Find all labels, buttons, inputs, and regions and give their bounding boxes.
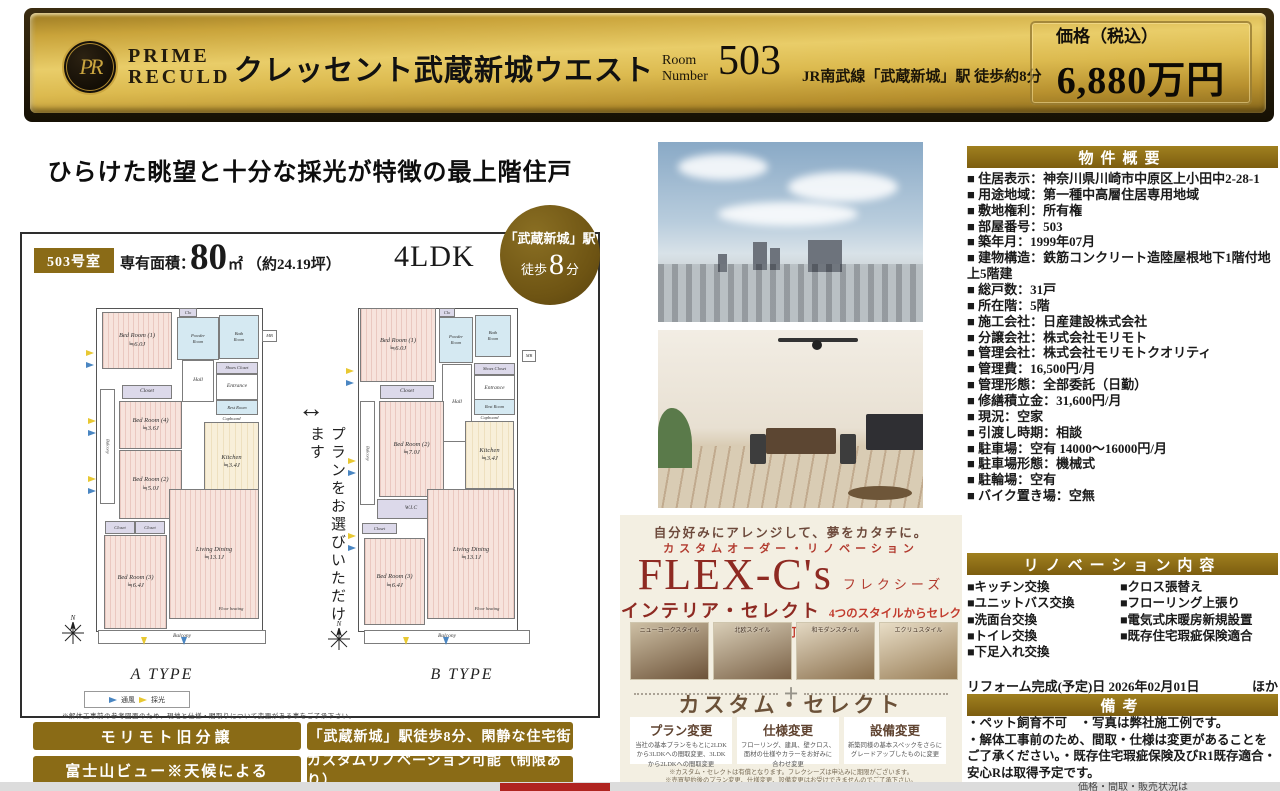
custom-select-title: カスタム・セレクト [620,689,962,719]
feature-badge-renovation: カスタムリノベーション可能（制限あり） [307,756,573,784]
compass-icon: N [328,620,350,650]
room-closet: Closet [122,385,172,399]
catch-headline: ひらけた眺望と十分な採光が特徴の最上階住戸 [36,152,584,187]
flexcs-panel: 自分好みにアレンジして、夢をカタチに。 カスタムオーダー・リノベーション FLE… [620,515,962,782]
room-entrance: Entrance [216,374,258,400]
interior-select-title: インテリア・セレクト [621,601,821,621]
overview-item: ■ 管理形態：全部委託（日勤） [967,377,1279,393]
room-number: 503 [718,37,781,85]
flex-brand-row: FLEX-C's フレクシーズ [620,549,962,600]
room-living-dining: Living Dining ≒13.1J [427,489,515,619]
room-restroom: Rest Room [216,400,258,415]
room-cupboard: Cupboard [465,414,514,421]
renovation-item: ■トイレ交換 [967,628,1075,644]
remarks-line: ・解体工事前のため、間取・仕様は変更があることをご了承ください。・既存住宅瑕疵保… [967,732,1279,782]
light-arrow-icon [139,697,147,703]
plan-select-text: プランをお選びいただけます [306,426,348,626]
wind-arrow-icon [348,470,356,476]
feature-badge-fujiview: 富士山ビュー※天候による [33,756,301,784]
legend-wind: 通風 [121,695,135,705]
overview-list: ■ 住居表示：神奈川県川崎市中原区上小田中2-28-1 ■ 用途地域：第一種中高… [967,171,1279,504]
renovation-item: ■既存住宅瑕疵保険適合 [1120,628,1253,644]
renovation-list-left: ■キッチン交換 ■ユニットバス交換 ■洗面台交換 ■トイレ交換 ■下足入れ交換 [967,579,1075,660]
wind-arrow-icon [181,637,187,645]
feature-badge-morimoto: モリモト旧分譲 [33,722,301,750]
overview-item: ■ 所在階：5階 [967,298,1279,314]
floorplan-a: Bed Room (1) ≒6.0J Clo Powder Room Bath … [48,308,280,650]
ceiling-light-shape [812,340,822,350]
flex-brand-logo: FLEX-C's [638,550,833,599]
style-label: ニューヨークスタイル [631,625,708,634]
overview-item: ■ バイク置き場：空無 [967,488,1279,504]
footer-text-fragment: 価格・間取・販売状況は [1078,782,1188,791]
room-closet: Closet [135,521,165,534]
room-bedroom3: Bed Room (3) ≒6.4J [104,535,167,629]
style-photo: 北欧スタイル [713,622,792,680]
banner-plate: PR PRIME RECULD クレッセント武蔵新城ウエスト Room Numb… [30,13,1266,113]
overview-item: ■ 建物構造：鉄筋コンクリート造陸屋根地下1階付地上5階建 [967,250,1279,282]
style-label: エクリュスタイル [880,625,957,634]
station-access: JR南武線「武蔵新城」駅 徒歩約8分 [802,65,1042,86]
plan-b-label: B TYPE [382,666,542,684]
area-value-group: 80 ㎡ （約24.19坪） [190,236,341,282]
room-entrance: Entrance [474,375,515,402]
overview-item: ■ 部屋番号：503 [967,219,1279,235]
area-label: 専有面積： [120,252,195,273]
light-arrow-icon [86,350,94,356]
property-title: クレッセント武蔵新城ウエスト [234,47,654,89]
custom-select-cards: プラン変更 当社の基本プランをもとに2LDKから3LDKへの間取変更、3LDKか… [630,717,946,764]
plan-disclaimer: ※解体工事前の参考図面のため、現地と仕様・間取りについて変更がある事をご了承下さ… [62,710,356,720]
remarks-header: 備考 [967,694,1278,716]
room-bedroom1: Bed Room (1) ≒6.0J [102,312,172,369]
compass-icon: N [62,614,84,644]
room-cupboard: Cupboard [204,415,259,422]
card-equipment-change: 設備変更 新築同様の基本スペックをさらにグレードアップしたものに変更 [844,717,946,764]
feature-badge-station: 「武蔵新城」駅徒歩8分、閑静な住宅街 [307,722,573,750]
room-bedroom2: Bed Room (2) ≒7.0J [379,401,444,497]
logo-line1: PRIME [128,46,230,67]
overview-item: ■ 施工会社：日産建設株式会社 [967,314,1279,330]
room-bedroom1: Bed Room (1) ≒6.0J [360,308,436,382]
cloud-shape [678,154,768,180]
light-arrow-icon [348,533,356,539]
chair-shape [840,434,856,464]
floor-heating-label: Floor heating [206,605,256,613]
swap-arrow-icon: ↔ [298,394,324,424]
room-closet: Closet [362,523,397,534]
room-closet-small: Clo [179,308,197,317]
room-bedroom3: Bed Room (3) ≒6.4J [364,538,425,625]
card-spec-change: 仕様変更 フローリング、建具、壁クロス、面材の仕様やカラーをお好みに合わせ変更 [737,717,839,764]
area-unit: ㎡ [228,253,243,274]
overview-item: ■ 住居表示：神奈川県川崎市中原区上小田中2-28-1 [967,171,1279,187]
header-banner: PR PRIME RECULD クレッセント武蔵新城ウエスト Room Numb… [24,8,1274,122]
room-hall: Hall [182,360,214,402]
light-arrow-icon [88,476,96,482]
wind-arrow-icon [346,380,354,386]
overview-item: ■ 現況：空家 [967,409,1279,425]
floor-heating-label: Floor heating [462,605,512,613]
cloud-shape [788,172,898,202]
footer-strip: 価格・間取・販売状況は [0,782,1280,791]
prime-reculd-logo: PR PRIME RECULD [62,39,230,95]
logo-text: PRIME RECULD [128,46,230,88]
renovation-header: リノベーション内容 [967,553,1278,575]
renovation-item: ■クロス張替え [1120,579,1253,595]
overview-item: ■ 駐車場形態：機械式 [967,456,1279,472]
renovation-item: ■下足入れ交換 [967,644,1075,660]
unit-number-badge: 503号室 [34,248,114,273]
view-photo [658,142,923,322]
style-photo: エクリュスタイル [879,622,958,680]
overview-item: ■ 駐車場：空有 14000～16000円/月 [967,441,1279,457]
wind-arrow-icon [88,430,96,436]
light-arrow-icon [141,637,147,645]
area-tsubo: （約24.19坪） [247,253,341,274]
room-kitchen: Kitchen ≒3.4J [465,421,514,489]
city-skyline [658,264,923,322]
overview-item: ■ 引渡し時期：相談 [967,425,1279,441]
remarks-line: ・ペット飼育不可 ・写真は弊社施工例です。 [967,715,1279,732]
overview-item: ■ 用途地域：第一種中高層住居専用地域 [967,187,1279,203]
chair-shape [750,434,766,464]
renovation-list-right: ■クロス張替え ■フローリング上張り ■電気式床暖房新規設置 ■既存住宅瑕疵保険… [1120,579,1253,644]
overview-item: ■ 敷地権利：所有権 [967,203,1279,219]
wind-arrow-icon [109,697,117,703]
light-arrow-icon [346,368,354,374]
room-balcony-side: Balcony [360,401,375,505]
reform-extra: ほか [1252,676,1278,695]
room-powder: Powder Room [439,317,473,363]
price-plate: 価格（税込） 6,880万円 [1030,21,1252,105]
flyer-page: PR PRIME RECULD クレッセント武蔵新城ウエスト Room Numb… [0,0,1280,791]
renovation-item: ■キッチン交換 [967,579,1075,595]
room-shoes-closet: Shoes Closet [474,363,515,375]
plan-a-label: A TYPE [82,666,242,684]
wind-arrow-icon [88,488,96,494]
price-label: 価格（税込） [1056,22,1158,47]
overview-item: ■ 総戸数：31戸 [967,282,1279,298]
room-bedroom4: Bed Room (4) ≒3.6J [119,401,182,449]
room-bath: Bath Room [475,315,511,357]
area-number: 80 [190,236,227,279]
flex-catchcopy: 自分好みにアレンジして、夢をカタチに。 [620,522,962,541]
station-walk-badge: 「武蔵新城」駅 徒歩 8 分 [500,205,600,305]
overview-item: ■ 駐輪場：空有 [967,472,1279,488]
wind-arrow-icon [348,545,356,551]
interior-photo [658,330,923,508]
room-closet: Closet [380,385,434,399]
room-balcony-side: Balcony [100,389,115,504]
style-label: 和モダンスタイル [797,625,874,634]
light-arrow-icon [403,637,409,645]
renovation-item: ■フローリング上張り [1120,595,1253,611]
cloud-shape [718,202,858,226]
room-shoes-closet: Shoes Closet [216,362,258,374]
overview-item: ■ 築年月：1999年07月 [967,234,1279,250]
logo-line2: RECULD [128,67,230,88]
room-powder: Powder Room [177,317,219,360]
legend-light: 採光 [151,695,165,705]
card-plan-change: プラン変更 当社の基本プランをもとに2LDKから3LDKへの間取変更、3LDKか… [630,717,732,764]
overview-item: ■ 分譲会社：株式会社モリモト [967,330,1279,346]
room-closet: Closet [105,521,135,534]
renovation-item: ■ユニットバス交換 [967,595,1075,611]
style-photo: ニューヨークスタイル [630,622,709,680]
floorplan-b: Bed Room (1) ≒6.0J Clo Powder Room Bath … [350,308,582,650]
dining-table-shape [766,428,836,454]
room-closet-small: Clo [439,308,455,317]
coffee-table-shape [848,486,912,500]
pr-monogram-icon: PR [62,39,118,95]
tv-board-shape [866,414,923,450]
overview-item: ■ 管理会社：株式会社モリモトクオリティ [967,345,1279,361]
wind-arrow-icon [86,362,94,368]
room-mb: MB [522,350,536,362]
wind-arrow-icon [443,637,449,645]
light-arrow-icon [348,458,356,464]
layout-type: 4LDK [394,240,475,274]
style-photo: 和モダンスタイル [796,622,875,680]
footer-red-box [500,783,610,791]
room-number-label: Room Number [662,53,708,85]
overview-item: ■ 修繕積立金：31,600円/月 [967,393,1279,409]
plan-legend: 通風 採光 [84,691,190,708]
room-restroom: Rest Room [474,399,515,415]
room-mb: MB [262,330,277,342]
room-bath: Bath Room [219,315,259,359]
flex-brand-kana: フレクシーズ [843,577,944,592]
plant-shape [658,408,692,468]
room-living-dining: Living Dining ≒13.1J [169,489,259,619]
remarks-text: ・ペット飼育不可 ・写真は弊社施工例です。 ・解体工事前のため、間取・仕様は変更… [967,715,1279,781]
renovation-item: ■洗面台交換 [967,612,1075,628]
renovation-item: ■電気式床暖房新規設置 [1120,612,1253,628]
style-thumbnails: ニューヨークスタイル 北欧スタイル 和モダンスタイル エクリュスタイル [630,622,958,680]
overview-item: ■ 管理費：16,500円/月 [967,361,1279,377]
floorplan-panel: 503号室 専有面積： 80 ㎡ （約24.19坪） 4LDK 「武蔵新城」駅 … [20,232,600,718]
overview-header: 物件概要 [967,146,1278,168]
light-arrow-icon [88,418,96,424]
price-value: 6,880万円 [1057,49,1226,104]
style-label: 北欧スタイル [714,625,791,634]
